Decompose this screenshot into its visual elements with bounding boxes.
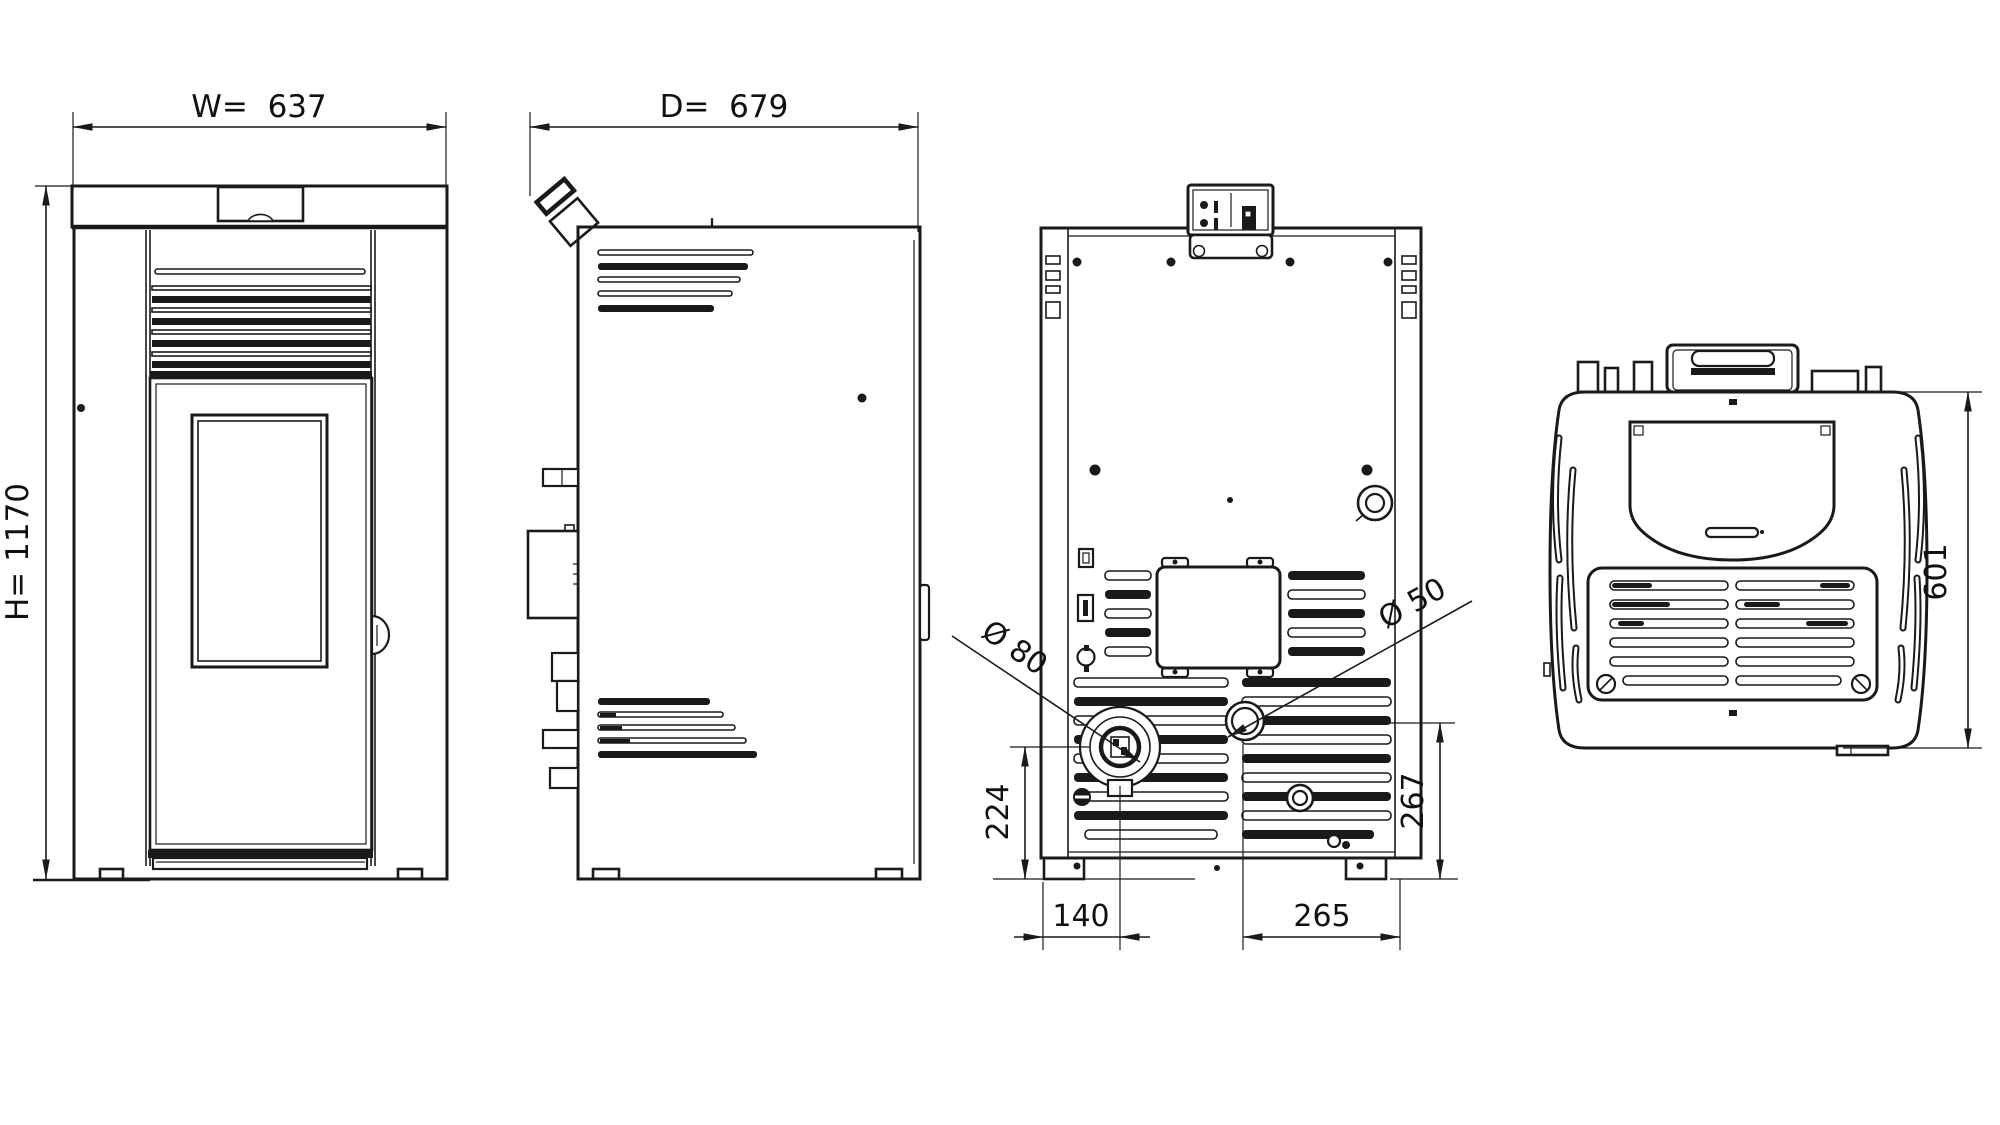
side-bottom-louvers xyxy=(598,698,757,758)
intake-diameter-label: Ø 50 xyxy=(1373,571,1452,636)
rear-foot-right xyxy=(1346,858,1386,879)
side-view xyxy=(528,179,929,879)
thermostat-knob xyxy=(1356,486,1392,521)
door-sill xyxy=(148,850,373,858)
side-body xyxy=(578,227,920,879)
rear-top-bracket xyxy=(1188,185,1273,258)
drain-knob xyxy=(1287,785,1313,811)
width-dimension: W= 637 xyxy=(73,89,446,192)
electrical-box-side xyxy=(528,531,578,618)
flue-offset-dimension: 140 xyxy=(1014,786,1150,950)
rear-view xyxy=(1041,185,1421,879)
screw-dot xyxy=(858,394,867,403)
flue-outlet xyxy=(1073,707,1160,806)
flue-stub xyxy=(537,179,598,246)
stove-drawing: W= 637 H= 1170 xyxy=(0,0,2000,1125)
rear-connectors-side-profile xyxy=(528,469,578,788)
hopper-lid-notch xyxy=(248,214,273,221)
front-view xyxy=(72,186,447,879)
top-hopper-lid xyxy=(1630,422,1834,560)
flue-height-label: 224 xyxy=(981,783,1016,840)
door-handle-side xyxy=(920,585,929,640)
electrical-box xyxy=(1157,558,1280,677)
technical-drawing-page: W= 637 H= 1170 xyxy=(0,0,2000,1125)
stove-door xyxy=(148,378,389,869)
intake-height-label: 267 xyxy=(1396,772,1431,829)
depth-dimension-label: D= 679 xyxy=(660,89,789,125)
power-socket-switch-icons xyxy=(1078,549,1095,672)
side-top-louvers xyxy=(598,250,753,312)
door-handle xyxy=(372,616,389,654)
flue-offset-label: 140 xyxy=(1052,899,1109,934)
height-dimension-label: H= 1170 xyxy=(0,483,36,621)
top-view xyxy=(1544,345,1927,755)
top-handle-bracket xyxy=(1667,345,1798,392)
front-air-grille xyxy=(150,269,372,378)
top-foot-tab xyxy=(1837,746,1888,755)
top-depth-label: 601 xyxy=(1919,543,1954,600)
intake-offset-label: 265 xyxy=(1293,899,1350,934)
intake-offset-dimension: 265 xyxy=(1243,744,1400,950)
door-window xyxy=(192,415,327,667)
width-dimension-label: W= 637 xyxy=(191,89,327,125)
flange-vents xyxy=(1046,256,1416,318)
top-grille-panel xyxy=(1588,568,1877,700)
screw-dot xyxy=(77,404,85,412)
